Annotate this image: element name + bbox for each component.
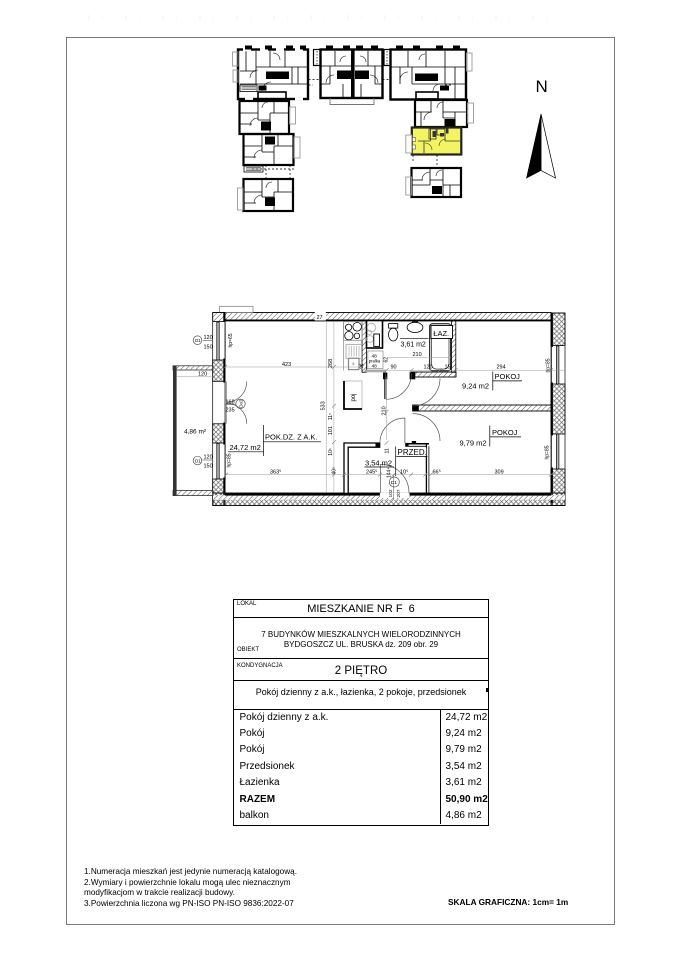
svg-text:24,72 m2: 24,72 m2	[230, 443, 261, 452]
svg-text:120: 120	[424, 365, 433, 371]
svg-text:101: 101	[328, 426, 334, 435]
svg-text:Do2: Do2	[238, 399, 243, 408]
svg-text:423: 423	[282, 362, 291, 368]
svg-text:11: 11	[384, 448, 390, 453]
svg-text:40⁵: 40⁵	[332, 467, 338, 475]
svg-text:27: 27	[317, 315, 323, 321]
svg-text:309: 309	[495, 470, 504, 476]
svg-text:120: 120	[204, 335, 213, 341]
svg-text:3,61 m2: 3,61 m2	[401, 342, 426, 349]
svg-text:hp=85: hp=85	[227, 453, 233, 467]
svg-text:poj: poj	[351, 393, 357, 401]
svg-text:N: N	[536, 77, 548, 96]
svg-text:15: 15	[445, 365, 451, 371]
svg-text:9,79 m2: 9,79 m2	[460, 439, 487, 448]
svg-text:D1: D1	[391, 480, 397, 486]
svg-text:210: 210	[413, 352, 422, 358]
svg-text:11⁵: 11⁵	[328, 413, 334, 420]
svg-text:62: 62	[383, 357, 389, 363]
svg-text:533: 533	[320, 401, 326, 410]
svg-text:207: 207	[396, 489, 402, 497]
svg-text:O1: O1	[195, 338, 202, 343]
svg-text:9,24 m2: 9,24 m2	[462, 382, 489, 391]
svg-text:90: 90	[391, 365, 397, 371]
svg-text:POK.DZ. Z A.K.: POK.DZ. Z A.K.	[265, 433, 318, 442]
svg-text:O1: O1	[195, 458, 202, 463]
svg-text:ŁAZ.: ŁAZ.	[433, 329, 449, 338]
svg-text:268: 268	[328, 359, 334, 368]
svg-text:hp=65: hp=65	[228, 333, 234, 347]
svg-text:150: 150	[204, 463, 213, 469]
svg-text:pralka: pralka	[369, 358, 381, 363]
svg-text:120: 120	[204, 455, 213, 461]
svg-text:POKOJ: POKOJ	[492, 428, 518, 437]
svg-text:48: 48	[372, 364, 378, 370]
svg-text:235: 235	[226, 407, 235, 413]
svg-text:PRZED.: PRZED.	[398, 448, 427, 457]
svg-text:10⁵: 10⁵	[400, 469, 408, 476]
svg-text:POKOJ: POKOJ	[495, 372, 521, 381]
svg-text:168: 168	[226, 399, 235, 405]
svg-text:66⁵: 66⁵	[433, 469, 441, 476]
svg-text:363⁵: 363⁵	[270, 469, 281, 476]
svg-text:10⁵: 10⁵	[328, 448, 334, 456]
svg-text:144⁴: 144⁴	[386, 468, 392, 479]
svg-text:hp=85: hp=85	[546, 358, 552, 372]
svg-text:4,86 m²: 4,86 m²	[184, 428, 207, 435]
svg-text:294: 294	[497, 365, 506, 371]
svg-text:210: 210	[381, 406, 387, 415]
svg-text:hp=85: hp=85	[545, 445, 551, 459]
svg-text:245⁵: 245⁵	[366, 469, 377, 476]
svg-text:150: 150	[204, 344, 213, 350]
svg-text:120: 120	[198, 372, 207, 378]
svg-text:102: 102	[388, 489, 394, 497]
svg-text:3,54 m2: 3,54 m2	[365, 458, 392, 467]
